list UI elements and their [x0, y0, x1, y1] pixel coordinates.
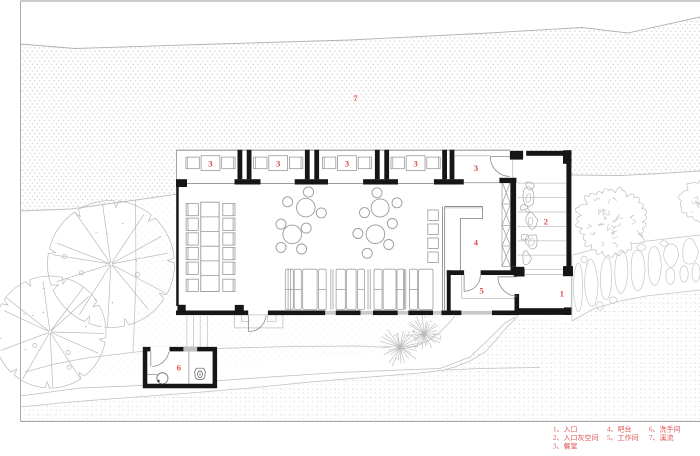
svg-text:2: 2: [544, 217, 549, 227]
svg-text:4、吧台: 4、吧台: [607, 425, 632, 434]
svg-text:3: 3: [276, 159, 281, 169]
svg-text:3: 3: [474, 163, 479, 173]
svg-text:3: 3: [413, 159, 418, 169]
svg-text:6、洗手间: 6、洗手间: [649, 425, 681, 434]
svg-text:1、入口: 1、入口: [553, 426, 578, 434]
svg-text:7: 7: [353, 93, 358, 103]
svg-text:3: 3: [345, 159, 350, 169]
svg-text:1: 1: [560, 288, 564, 298]
svg-text:5、工作间: 5、工作间: [607, 433, 639, 442]
svg-text:6: 6: [177, 363, 182, 373]
svg-text:4: 4: [474, 238, 479, 248]
svg-text:3、餐室: 3、餐室: [553, 442, 578, 451]
svg-text:2、入口灰空间: 2、入口灰空间: [553, 433, 599, 442]
svg-text:3: 3: [208, 159, 213, 169]
svg-text:7、溪流: 7、溪流: [649, 433, 674, 442]
svg-text:5: 5: [479, 285, 484, 295]
